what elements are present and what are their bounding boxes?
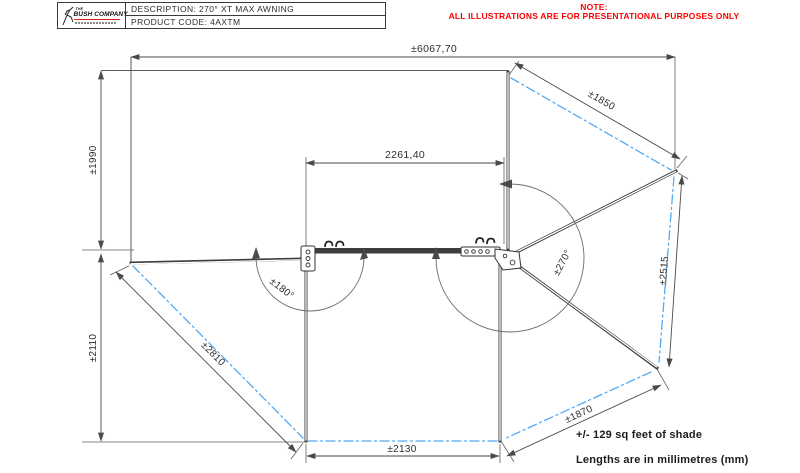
rail-clamps (325, 238, 495, 247)
drawing-sheet: THE BUSH COMPANY DESCRIPTION: 270° XT MA… (0, 0, 800, 473)
label-front-width: ±2130 (387, 444, 416, 455)
arc-180-arrow-west (252, 247, 260, 259)
label-angle-270: ±270° (551, 248, 574, 278)
fabric-centerlines (133, 78, 674, 441)
dim-right-lower (507, 385, 661, 456)
right-pivot-bracket (461, 247, 521, 270)
awning-plan-drawing: ±6067,70 ±1990 2261,40 ±2110 ±2810 ±2130… (0, 0, 800, 473)
label-right-outer: ±2515 (658, 256, 671, 286)
dim-right-upper (515, 63, 680, 159)
label-rail-length: 2261,40 (385, 149, 425, 161)
label-overall-width: ±6067,70 (411, 43, 457, 55)
dim-right-outer (669, 176, 682, 367)
arc-270-arrow-north (499, 180, 512, 189)
awning-arms (131, 72, 676, 441)
label-right-upper: ±1850 (586, 89, 617, 113)
label-side-depth: ±2110 (88, 334, 99, 363)
left-pivot-bracket (301, 246, 315, 271)
dimension-lines (101, 57, 682, 456)
dim-left-diagonal (116, 272, 296, 452)
fabric-line-bottom-right (504, 372, 651, 439)
label-angle-180: ±180° (267, 276, 296, 302)
label-left-diagonal: ±2810 (199, 340, 228, 369)
label-rear-depth: ±1990 (88, 145, 99, 174)
